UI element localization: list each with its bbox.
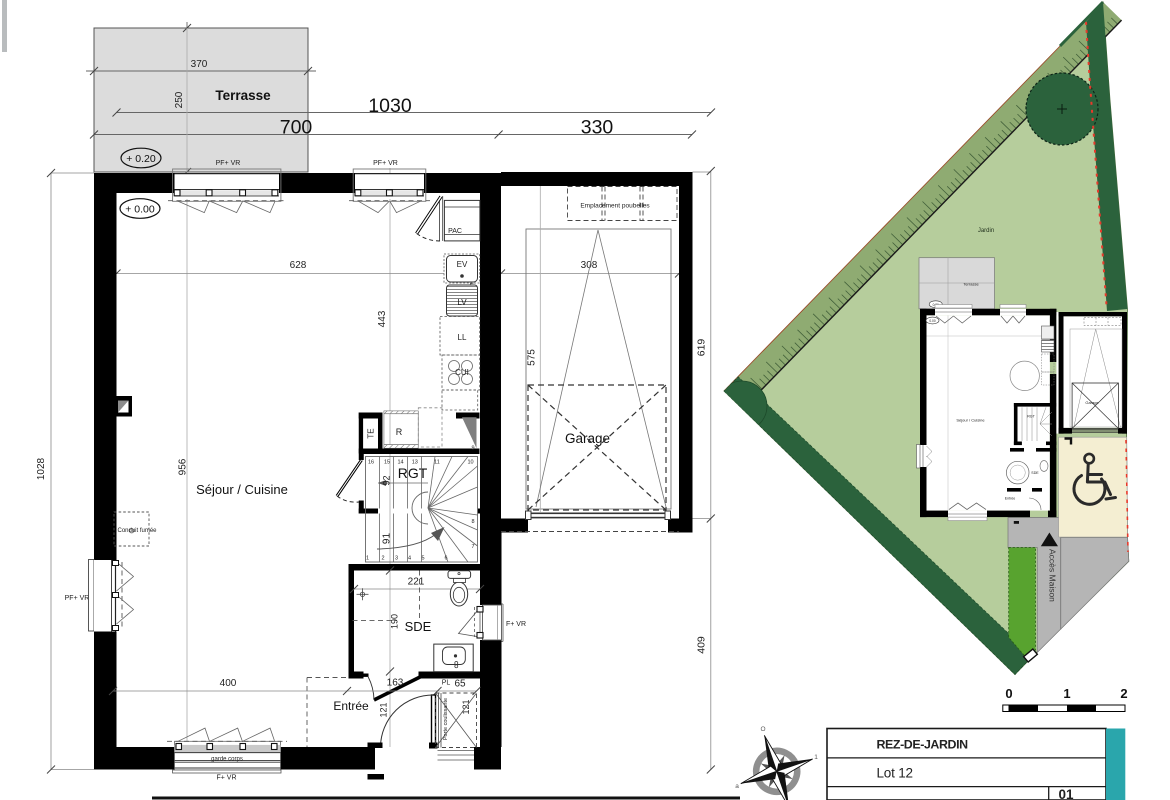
svg-text:956: 956 xyxy=(178,458,189,475)
svg-text:Séjour / Cuisine: Séjour / Cuisine xyxy=(956,418,985,423)
svg-text:Lot 12: Lot 12 xyxy=(877,766,913,781)
svg-text:Garage: Garage xyxy=(1085,400,1099,405)
svg-text:LV: LV xyxy=(457,298,467,307)
svg-text:370: 370 xyxy=(191,59,208,70)
svg-text:1: 1 xyxy=(1063,686,1070,701)
svg-text:1030: 1030 xyxy=(368,95,412,117)
svg-text:TE: TE xyxy=(367,428,376,438)
svg-text:Entrée: Entrée xyxy=(1005,497,1016,501)
svg-text:14: 14 xyxy=(397,460,403,466)
svg-text:Terrasse: Terrasse xyxy=(963,282,979,287)
svg-text:PF+ VR: PF+ VR xyxy=(373,160,398,167)
svg-text:F+ VR: F+ VR xyxy=(506,621,526,628)
svg-text:6: 6 xyxy=(444,556,447,562)
svg-text:LL: LL xyxy=(458,333,467,342)
svg-text:9: 9 xyxy=(471,446,474,452)
svg-text:15: 15 xyxy=(384,460,390,466)
svg-text:R: R xyxy=(396,427,403,437)
svg-text:EV: EV xyxy=(457,260,468,269)
svg-text:Jardin: Jardin xyxy=(978,228,994,234)
svg-text:garde corps: garde corps xyxy=(211,757,243,763)
svg-text:91: 91 xyxy=(382,533,393,545)
svg-text:121: 121 xyxy=(379,702,389,717)
svg-text:01: 01 xyxy=(1058,787,1074,800)
svg-text:330: 330 xyxy=(581,117,614,139)
svg-text:619: 619 xyxy=(696,339,708,357)
svg-text:575: 575 xyxy=(527,349,538,366)
svg-text:13: 13 xyxy=(412,460,418,466)
svg-text:409: 409 xyxy=(696,636,708,654)
svg-text:16: 16 xyxy=(368,460,374,466)
svg-text:2: 2 xyxy=(1120,686,1127,701)
svg-text:a: a xyxy=(735,783,739,790)
svg-text:F+ VR: F+ VR xyxy=(216,775,236,782)
svg-text:1: 1 xyxy=(814,754,818,761)
svg-text:Accès Maison: Accès Maison xyxy=(1048,549,1058,602)
svg-text:4: 4 xyxy=(408,556,411,562)
svg-text:221: 221 xyxy=(408,577,425,588)
svg-text:O: O xyxy=(760,726,765,733)
svg-text:65: 65 xyxy=(454,679,466,690)
svg-text:Terrasse: Terrasse xyxy=(215,88,271,103)
svg-text:SDE: SDE xyxy=(405,619,432,634)
svg-text:400: 400 xyxy=(220,678,237,689)
svg-text:3: 3 xyxy=(395,556,398,562)
svg-text:7: 7 xyxy=(471,544,474,550)
svg-text:250: 250 xyxy=(174,91,185,108)
svg-text:RGT: RGT xyxy=(398,465,428,481)
svg-text:Porte coulissante: Porte coulissante xyxy=(443,698,449,740)
svg-text:+ 0.00: + 0.00 xyxy=(125,204,155,216)
svg-text:RGT: RGT xyxy=(1027,415,1035,419)
svg-text:Séjour / Cuisine: Séjour / Cuisine xyxy=(196,482,288,497)
svg-text:10: 10 xyxy=(467,460,473,466)
svg-text:Emplacement poubelles: Emplacement poubelles xyxy=(580,203,650,210)
svg-text:163: 163 xyxy=(387,678,404,689)
svg-text:Entrée: Entrée xyxy=(333,699,369,713)
svg-text:11: 11 xyxy=(434,460,440,466)
svg-text:PL: PL xyxy=(442,680,451,687)
svg-text:8: 8 xyxy=(471,519,474,525)
svg-text:628: 628 xyxy=(290,260,307,271)
svg-text:700: 700 xyxy=(280,117,313,139)
svg-text:CUI: CUI xyxy=(455,368,469,377)
svg-text:443: 443 xyxy=(377,310,388,327)
svg-text:Conduit fumée: Conduit fumée xyxy=(117,528,157,534)
svg-text:1: 1 xyxy=(366,556,369,562)
svg-text:PAC: PAC xyxy=(448,228,462,235)
svg-text:0.00: 0.00 xyxy=(929,319,935,323)
svg-text:SDE: SDE xyxy=(1031,471,1039,475)
svg-text:0: 0 xyxy=(1005,686,1012,701)
svg-text:92: 92 xyxy=(382,475,392,485)
svg-text:PF+ VR: PF+ VR xyxy=(65,595,90,602)
svg-text:REZ-DE-JARDIN: REZ-DE-JARDIN xyxy=(877,738,969,752)
svg-text:5: 5 xyxy=(421,556,424,562)
svg-text:2: 2 xyxy=(381,556,384,562)
svg-text:+ 0.20: + 0.20 xyxy=(126,153,156,165)
svg-text:PF+ VR: PF+ VR xyxy=(216,160,241,167)
svg-text:1028: 1028 xyxy=(36,457,47,480)
svg-text:190: 190 xyxy=(390,614,400,629)
